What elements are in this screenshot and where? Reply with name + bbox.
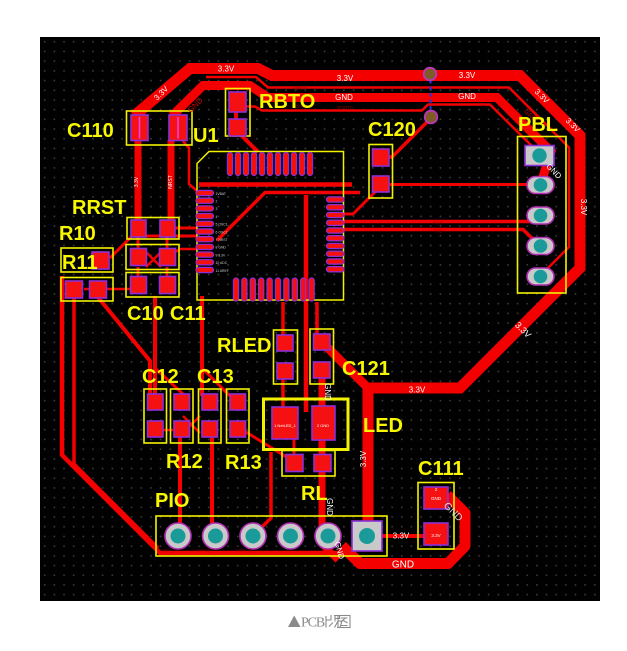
svg-text:2: 2 bbox=[216, 200, 218, 204]
svg-text:netPIO_2: netPIO_2 bbox=[197, 548, 215, 553]
svg-text:C12: C12 bbox=[142, 366, 179, 388]
svg-text:10 ADC: 10 ADC bbox=[216, 261, 228, 265]
svg-text:R12: R12 bbox=[166, 451, 203, 473]
svg-text:2 GND: 2 GND bbox=[317, 423, 329, 428]
svg-text:RRST: RRST bbox=[72, 197, 126, 219]
svg-text:NRST: NRST bbox=[168, 175, 174, 189]
svg-text:GND: GND bbox=[458, 92, 476, 101]
svg-text:C10: C10 bbox=[127, 303, 164, 325]
svg-text:C11: C11 bbox=[170, 303, 206, 325]
svg-text:7 NRST: 7 NRST bbox=[216, 238, 228, 242]
svg-text:GND: GND bbox=[335, 93, 353, 102]
svg-text:C111: C111 bbox=[418, 458, 464, 480]
svg-text:3.3V: 3.3V bbox=[134, 176, 140, 187]
svg-text:U1: U1 bbox=[193, 125, 219, 147]
svg-text:3.3V: 3.3V bbox=[579, 199, 588, 216]
svg-text:C120: C120 bbox=[368, 119, 416, 141]
svg-text:3.3V: 3.3V bbox=[359, 450, 368, 467]
svg-text:6 OSC2: 6 OSC2 bbox=[216, 230, 228, 234]
svg-text:RXD: RXD bbox=[433, 221, 443, 226]
svg-text:5 OSC1: 5 OSC1 bbox=[216, 223, 228, 227]
svg-text:GND: GND bbox=[392, 560, 414, 571]
svg-text:LED: LED bbox=[363, 415, 403, 437]
svg-text:PCB: PCB bbox=[301, 616, 325, 631]
svg-text:C13: C13 bbox=[197, 366, 234, 388]
svg-text:3.3V: 3.3V bbox=[431, 533, 440, 538]
svg-text:C121: C121 bbox=[342, 358, 390, 380]
svg-text:PBL: PBL bbox=[518, 114, 558, 136]
svg-text:BOOT0: BOOT0 bbox=[337, 105, 353, 110]
svg-text:3: 3 bbox=[216, 207, 218, 211]
svg-text:RBTO: RBTO bbox=[259, 91, 315, 113]
svg-text:8 GND: 8 GND bbox=[216, 246, 227, 250]
svg-text:RL: RL bbox=[301, 483, 328, 505]
svg-text:netPIO_1: netPIO_1 bbox=[159, 548, 177, 553]
svg-text:netPIO_3: netPIO_3 bbox=[235, 548, 253, 553]
svg-text:C110: C110 bbox=[67, 120, 114, 142]
svg-text:3.3V: 3.3V bbox=[337, 74, 354, 83]
svg-text:GND: GND bbox=[323, 383, 332, 401]
svg-text:1 NetLED_1: 1 NetLED_1 bbox=[274, 423, 297, 428]
svg-text:R11: R11 bbox=[62, 252, 98, 274]
svg-text:3.3V: 3.3V bbox=[393, 532, 410, 541]
svg-text:RLED: RLED bbox=[217, 335, 271, 357]
svg-text:GND: GND bbox=[431, 496, 442, 501]
svg-text:3.3V: 3.3V bbox=[459, 71, 476, 80]
svg-text:3.3V: 3.3V bbox=[218, 65, 235, 74]
svg-text:PIO: PIO bbox=[155, 490, 189, 512]
svg-text:3.3V: 3.3V bbox=[409, 386, 426, 395]
svg-text:4: 4 bbox=[216, 215, 218, 219]
svg-text:TXD: TXD bbox=[434, 229, 444, 234]
svg-text:1VBAT: 1VBAT bbox=[216, 192, 227, 196]
svg-text:9 3.3V: 9 3.3V bbox=[216, 253, 227, 257]
svg-text:R13: R13 bbox=[225, 452, 262, 474]
svg-text:R10: R10 bbox=[59, 223, 96, 245]
svg-text:11 AREF: 11 AREF bbox=[216, 269, 229, 273]
